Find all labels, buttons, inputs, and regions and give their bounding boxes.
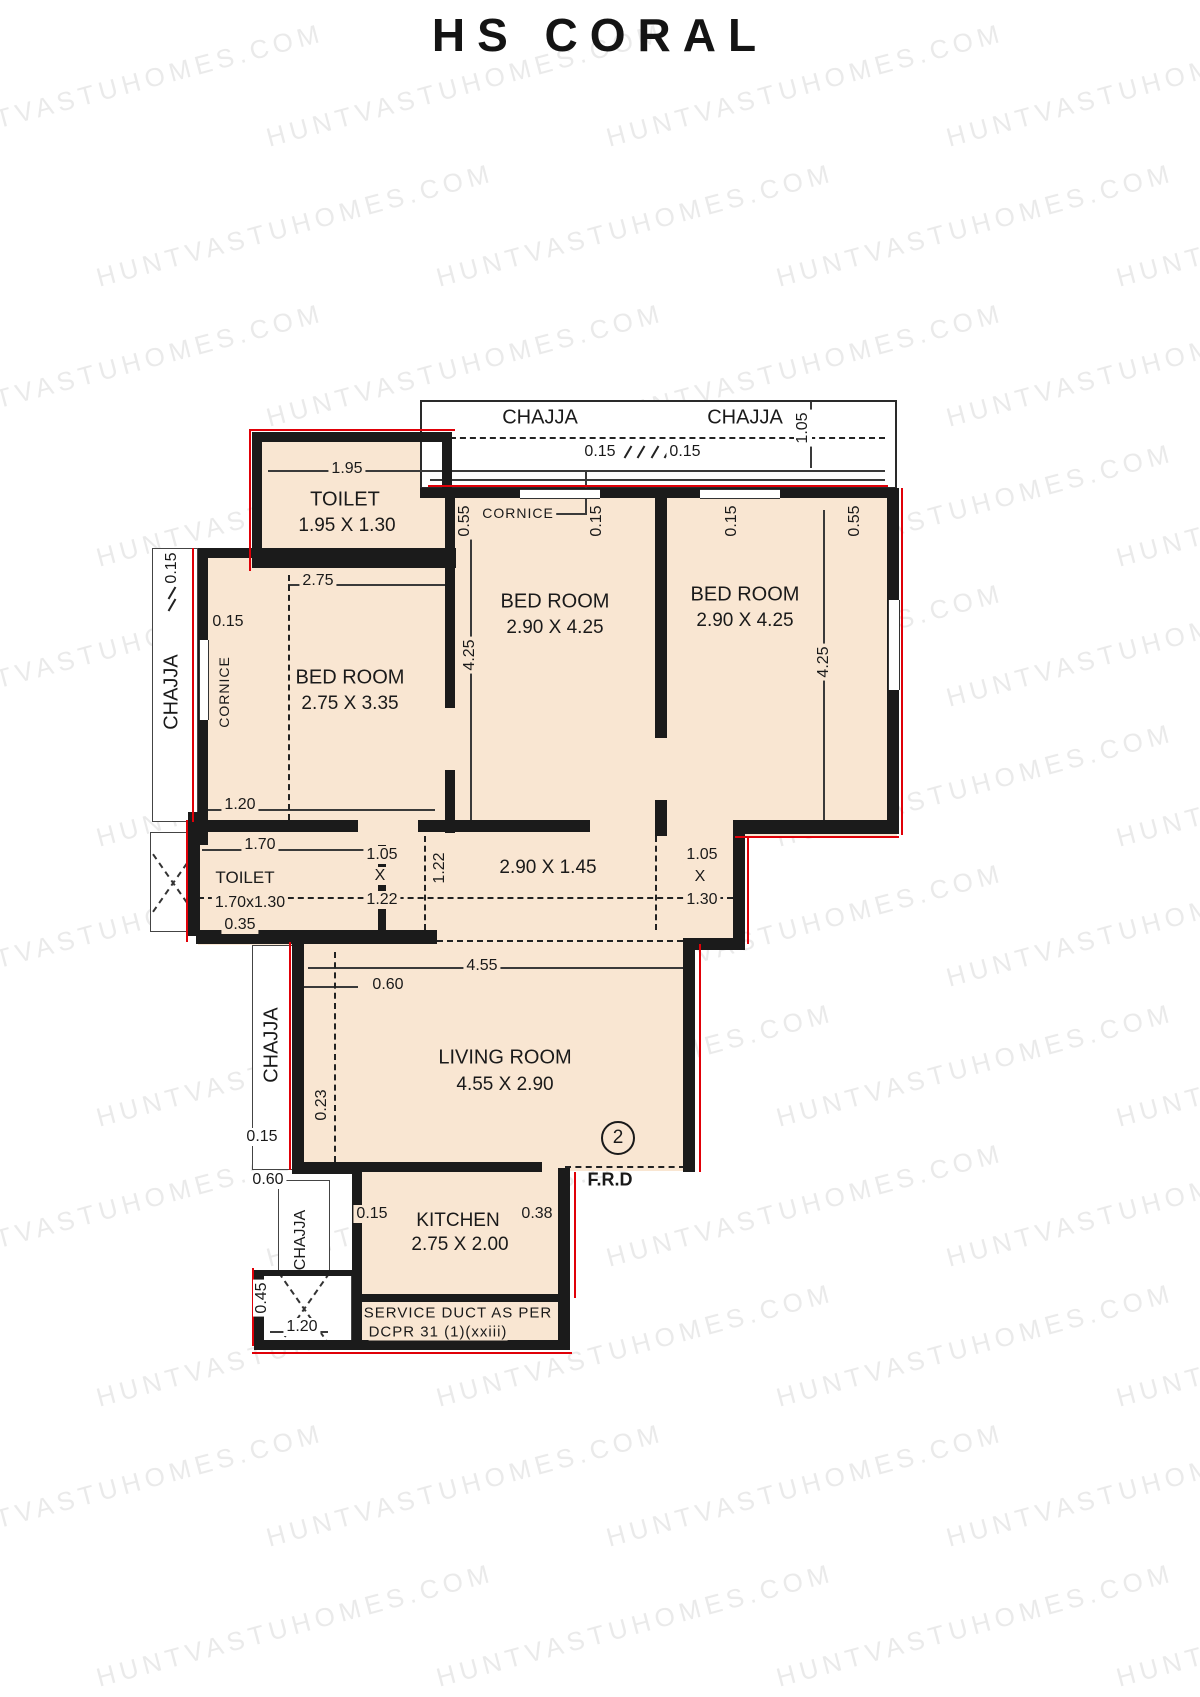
chajja-kitchen-label: CHAJJA [292,1210,310,1270]
dashed-line [288,575,290,820]
dashed-line [424,836,426,930]
chajja-left-label: CHAJJA [161,654,184,730]
wall-segment [352,1294,570,1302]
plan-line [430,470,885,472]
wall-segment [252,432,452,442]
window-opening [199,640,209,720]
dim-015-top-left: 0.15 [581,443,618,461]
watermark-text: HUNTVASTUHOMES.COM [943,1137,1200,1273]
frd-label: F.R.D [588,1170,633,1191]
service-duct-line2: DCPR 31 (1)(xxiii) [369,1324,508,1341]
red-outline-segment [192,548,194,822]
dim-045: 0.45 [253,1279,271,1316]
chajja-top-right-label: CHAJJA [707,407,783,430]
toilet-small-size: 1.70x1.30 [212,894,288,912]
wall-segment [292,944,304,1170]
cornice-left-label: CORNICE [216,656,232,728]
cornice-label: CORNICE [480,505,556,521]
dim-105-top-right: 1.05 [794,409,812,446]
toilet-top-label: TOILET [310,489,380,512]
watermark-text: HUNTVASTUHOMES.COM [603,1417,1007,1553]
red-outline-segment [252,1352,572,1354]
kitchen-size: 2.75 X 2.00 [411,1234,508,1256]
plan-line [555,513,587,515]
dim-015-cornice-left: 0.15 [209,613,246,631]
plan-line [202,849,377,851]
wall-segment [418,820,590,832]
dim-038: 0.38 [518,1205,555,1223]
watermark-text: HUNTVASTUHOMES.COM [93,157,497,293]
dim-015-kitchen: 0.15 [353,1205,390,1223]
plan-title: HS CORAL [0,8,1200,62]
dim-055-mid: 0.55 [456,502,474,539]
watermark-text: HUNTVASTUHOMES.COM [773,997,1177,1133]
dim-120-bottom: 1.20 [283,1318,320,1336]
window-opening [520,489,600,499]
red-outline-segment [428,485,888,487]
chajja-top-dashed-line [430,437,885,439]
wall-segment [558,1168,570,1303]
dim-122-rot: 1.22 [431,849,449,886]
plan-line [430,479,885,481]
service-duct-line1: SERVICE DUCT AS PER [364,1305,553,1322]
wall-segment [198,548,456,558]
passage-left-122: 1.22 [363,891,400,909]
dim-120: 1.20 [221,796,258,814]
living-size: 4.55 X 2.90 [456,1074,553,1096]
dim-455: 4.55 [463,957,500,975]
watermark-text: HUNTVASTUHOMES.COM [943,857,1200,993]
dim-170: 1.70 [241,836,278,854]
wall-segment [254,1270,352,1276]
dashed-line [334,952,336,1162]
watermark-text: HUNTVASTUHOMES.COM [93,1557,497,1693]
watermark-text: HUNTVASTUHOMES.COM [1113,157,1200,293]
passage-left-x: X [372,867,389,885]
dim-015-living-left: 0.15 [243,1128,280,1146]
passage-left-105: 1.05 [363,846,400,864]
watermark-text: HUNTVASTUHOMES.COM [1113,1557,1200,1693]
passage-right-x: X [692,868,709,886]
wall-segment [733,834,745,945]
dim-015-chajja-left: 0.15 [163,549,181,586]
wall-segment [254,1340,570,1350]
dim-055-right: 0.55 [846,502,864,539]
bed-right-label: BED ROOM [691,584,800,607]
watermark-text: HUNTVASTUHOMES.COM [773,1277,1177,1413]
dim-060-left: 0.60 [249,1171,286,1189]
red-outline-segment [901,488,903,835]
watermark-text: HUNTVASTUHOMES.COM [943,577,1200,713]
watermark-text: HUNTVASTUHOMES.COM [1113,437,1200,573]
bed-left-size: 2.75 X 3.35 [301,693,398,715]
dim-035: 0.35 [221,916,258,934]
wall-segment [733,820,899,834]
wall-segment [655,488,667,738]
watermark-text: HUNTVASTUHOMES.COM [1113,717,1200,853]
door-number-badge: 2 [601,1121,635,1155]
passage-right-130: 1.30 [683,891,720,909]
wall-segment [352,1162,542,1172]
red-outline-segment [289,942,291,1170]
watermark-text: HUNTVASTUHOMES.COM [773,157,1177,293]
floorplan-canvas: HUNTVASTUHOMES.COMHUNTVASTUHOMES.COMHUNT… [0,0,1200,1697]
watermark-text: HUNTVASTUHOMES.COM [943,297,1200,433]
red-outline-segment [574,1172,576,1298]
living-label: LIVING ROOM [438,1047,571,1070]
chajja-top-box [420,400,897,489]
bed-mid-size: 2.90 X 4.25 [506,617,603,639]
bed-mid-label: BED ROOM [501,591,610,614]
bed-left-label: BED ROOM [296,667,405,690]
dim-060-living: 0.60 [369,976,406,994]
wall-segment [252,558,456,568]
dim-015-mid: 0.15 [588,502,606,539]
red-outline-segment [249,429,251,571]
window-opening [888,600,900,690]
toilet-small-label: TOILET [215,868,274,888]
dashed-line [655,836,657,930]
toilet-top-size: 1.95 X 1.30 [298,515,395,537]
dim-195: 1.95 [328,460,365,478]
dim-023: 0.23 [313,1086,331,1123]
watermark-text: HUNTVASTUHOMES.COM [1113,997,1200,1133]
watermark-text: HUNTVASTUHOMES.COM [943,1417,1200,1553]
watermark-text: HUNTVASTUHOMES.COM [0,1417,327,1553]
wall-segment [198,820,358,832]
wall-segment [655,800,667,836]
watermark-text: HUNTVASTUHOMES.COM [433,1557,837,1693]
watermark-text: HUNTVASTUHOMES.COM [0,297,327,433]
passage-size: 2.90 X 1.45 [499,857,596,879]
dim-015-top-right: 0.15 [666,443,703,461]
red-outline-segment [186,820,188,942]
frd-door-dashed [565,1166,685,1168]
dim-275: 2.75 [299,572,336,590]
bed-right-size: 2.90 X 4.25 [696,610,793,632]
dim-015-right: 0.15 [723,502,741,539]
red-outline-segment [699,944,701,1172]
dim-425-mid: 4.25 [461,636,479,673]
watermark-text: HUNTVASTUHOMES.COM [433,157,837,293]
dashed-line [437,940,683,942]
chajja-top-left-label: CHAJJA [502,407,578,430]
wall-segment [188,812,200,936]
red-outline-segment [735,836,899,838]
watermark-text: HUNTVASTUHOMES.COM [1113,1277,1200,1413]
passage-right-105: 1.05 [683,846,720,864]
chajja-living-label: CHAJJA [261,1007,284,1083]
plan-line [296,986,358,988]
watermark-text: HUNTVASTUHOMES.COM [263,1417,667,1553]
red-outline-segment [249,429,455,431]
watermark-text: HUNTVASTUHOMES.COM [773,1557,1177,1693]
wall-segment [445,488,455,708]
wall-segment [352,1162,362,1350]
kitchen-label: KITCHEN [416,1210,499,1232]
window-opening [700,489,780,499]
dim-425-right: 4.25 [815,643,833,680]
room-fill-bed-mid [448,488,663,833]
wall-segment [683,944,695,1172]
red-outline-segment [747,836,749,944]
room-fill-bed-right [660,488,897,837]
